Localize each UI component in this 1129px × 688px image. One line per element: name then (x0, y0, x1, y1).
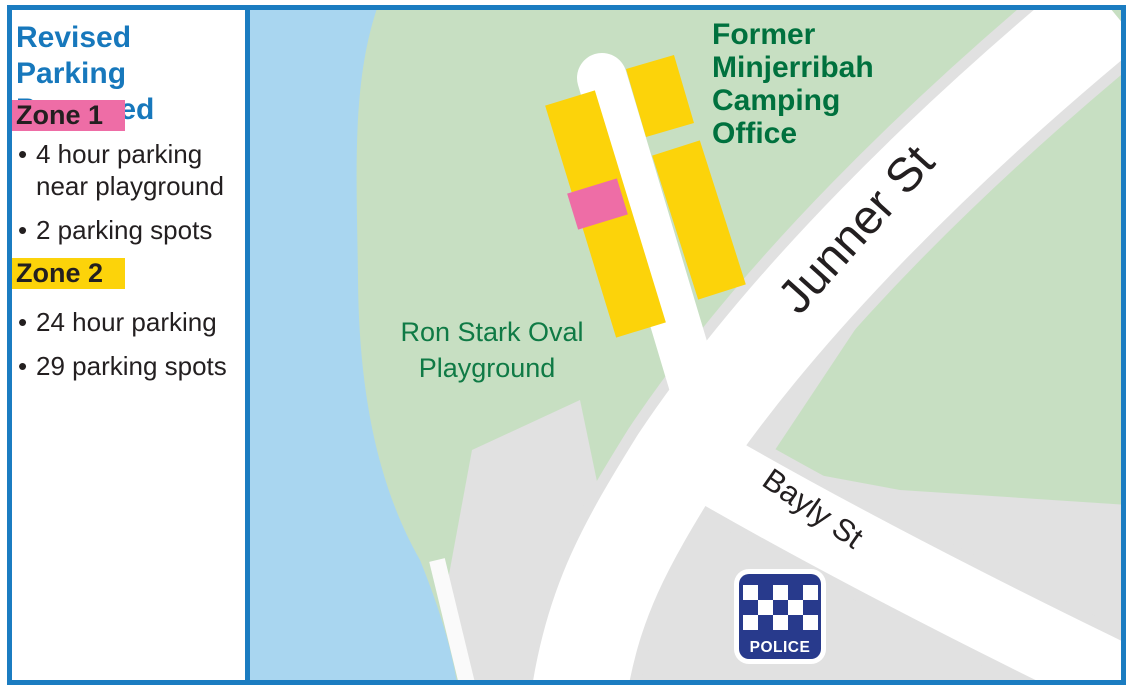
zone1-heading: Zone 1 (12, 100, 125, 131)
police-label: POLICE (750, 639, 811, 656)
bullet-icon: • (18, 214, 27, 246)
zone1-heading-highlight: Zone 1 (12, 100, 125, 131)
bullet-icon: • (18, 350, 27, 382)
list-item: • 29 parking spots (18, 350, 228, 382)
map-canvas: Former Minjerribah Camping Office Ron St… (250, 10, 1121, 680)
bullet-icon: • (18, 306, 27, 338)
zone2-heading-highlight: Zone 2 (12, 258, 125, 289)
zone1-bullet-text: 2 parking spots (36, 215, 212, 245)
police-station-icon: POLICE (734, 569, 826, 664)
oval-label-line: Playground (419, 353, 556, 383)
zone1-bullet-list: • 4 hour parking near playground • 2 par… (18, 138, 228, 258)
list-item: • 4 hour parking near playground (18, 138, 228, 202)
oval-label-line: Ron Stark Oval (400, 317, 583, 347)
camping-office-label-line: Office (712, 117, 797, 150)
zone2-bullet-text: 29 parking spots (36, 351, 227, 381)
legend-sidebar: Revised Parking Proposed Zone 1 • 4 hour… (12, 10, 245, 680)
camping-office-label-line: Minjerribah (712, 51, 874, 84)
parking-map-page: { "frame": { "border_color": "#1b7cc1" }… (0, 0, 1129, 688)
zone2-heading: Zone 2 (12, 258, 125, 289)
zone1-parking-segment (592, 186, 603, 222)
zone1-bullet-text: 4 hour parking near playground (36, 139, 224, 201)
map-area: Former Minjerribah Camping Office Ron St… (250, 10, 1121, 680)
list-item: • 2 parking spots (18, 214, 228, 246)
zone2-parking-strip-east-upper (650, 62, 670, 130)
camping-office-label-line: Former (712, 18, 816, 51)
camping-office-label-line: Camping (712, 84, 840, 117)
zone2-bullet-text: 24 hour parking (36, 307, 217, 337)
bullet-icon: • (18, 138, 27, 170)
zone2-bullet-list: • 24 hour parking • 29 parking spots (18, 306, 228, 394)
list-item: • 24 hour parking (18, 306, 228, 338)
map-frame: Revised Parking Proposed Zone 1 • 4 hour… (7, 5, 1126, 685)
